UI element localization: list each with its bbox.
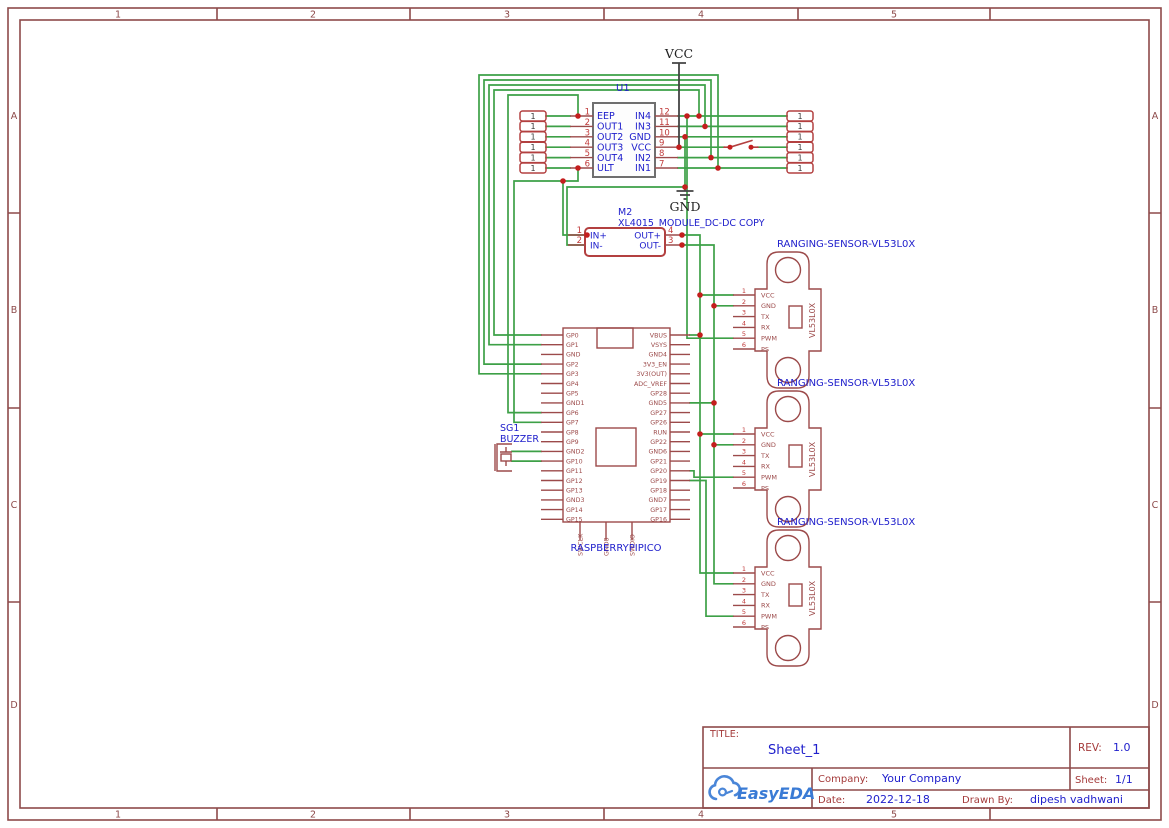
- frame-ticks-bottom: [217, 808, 990, 820]
- header-pin-number: 1: [797, 122, 802, 131]
- sensor-pin-number: 3: [742, 309, 746, 317]
- pico-pin-name: GP7: [566, 420, 579, 427]
- sensor-pin-name: RX: [761, 324, 771, 332]
- component-buzzer[interactable]: SG1 BUZZER: [495, 423, 539, 471]
- pico-left-pins[interactable]: [541, 335, 563, 519]
- title-label: TITLE:: [709, 729, 739, 740]
- header-pin-number: 1: [530, 153, 535, 162]
- gnd-net-flag[interactable]: GND: [670, 187, 701, 214]
- frame-row-label: C: [1152, 500, 1159, 511]
- pico-pin-name: GND: [566, 352, 581, 359]
- buzzer-crystal[interactable]: [501, 454, 511, 461]
- header-pin-number: 1: [530, 133, 535, 142]
- u1-designator[interactable]: U1: [616, 83, 630, 94]
- sensor-mount-hole: [776, 636, 801, 661]
- m2-pin-number: 2: [577, 236, 582, 246]
- pico-pin-name: GP1: [566, 342, 579, 349]
- wire[interactable]: [514, 181, 563, 422]
- u1-pin-number: 12: [659, 108, 670, 118]
- pico-pin-name: GP13: [566, 488, 583, 495]
- header-pin-number: 1: [797, 112, 802, 121]
- sensor-pin-number: 4: [742, 458, 746, 466]
- sensor-chip-label: VL53L0X: [808, 302, 817, 338]
- pico-pin-name: GND2: [566, 449, 584, 456]
- headers-left[interactable]: 1 1 1 1 1 1: [520, 111, 546, 173]
- pico-pin-name: GP14: [566, 507, 583, 514]
- u1-pin-name: EEP: [597, 111, 615, 122]
- easyeda-logo-text: EasyEDA: [737, 784, 815, 803]
- frame-row-label: A: [11, 111, 18, 122]
- buzzer-body[interactable]: [495, 444, 512, 471]
- sensor-pin-name: PS: [761, 345, 769, 353]
- vcc-net-label[interactable]: VCC: [664, 46, 693, 61]
- m2-pin-number: 3: [668, 236, 673, 246]
- sensor-pin-name: PWM: [761, 474, 777, 482]
- sensor-pin-name: VCC: [761, 291, 775, 299]
- sensor-pin-name: PS: [761, 484, 769, 492]
- pico-pin-name: GP9: [566, 439, 579, 446]
- sensor-pin-name: TX: [760, 452, 770, 460]
- title-block[interactable]: TITLE: Sheet_1 REV: 1.0 EasyEDA Company:…: [703, 727, 1149, 808]
- sensor-pin-name: RX: [761, 463, 771, 471]
- header-pin-number: 1: [797, 153, 802, 162]
- sensor-chip-label: VL53L0X: [808, 580, 817, 616]
- pico-bottom-pins[interactable]: [580, 522, 632, 540]
- sensor-mount-hole: [776, 397, 801, 422]
- sensor-pin-number: 3: [742, 448, 746, 456]
- pico-pin-name: ADC_VREF: [634, 381, 667, 388]
- wire[interactable]: [512, 451, 541, 461]
- buzzer-designator[interactable]: SG1: [500, 423, 519, 434]
- sensor-pin-number: 2: [742, 298, 746, 306]
- frame-ticks-top: [217, 8, 990, 20]
- wire[interactable]: [690, 471, 733, 477]
- sensor-pin-number: 6: [742, 341, 746, 349]
- frame-row-label: D: [10, 700, 17, 711]
- u1-pin-name: OUT2: [597, 132, 623, 143]
- schematic-editor-canvas[interactable]: 1 2 3 4 5 1 2 3 4 5 A B C D A B C D: [0, 0, 1169, 828]
- pico-pin-name: GP28: [650, 391, 667, 398]
- frame-col-label: 3: [504, 10, 510, 21]
- sensor-mount-hole: [776, 258, 801, 283]
- frame-col-label: 2: [310, 810, 316, 821]
- sensor-pin-name: PWM: [761, 613, 777, 621]
- u1-pin-number: 11: [659, 118, 670, 128]
- pico-pin-name: GP16: [650, 517, 667, 524]
- u1-pin-name: OUT3: [597, 142, 623, 153]
- pico-pin-name: GP8: [566, 429, 579, 436]
- company-value[interactable]: Your Company: [881, 772, 962, 785]
- sensor-chip-window: [789, 584, 802, 606]
- frame-col-label: 5: [891, 10, 897, 21]
- sensor-pin-name: VCC: [761, 430, 775, 438]
- pico-pin-name: GP26: [650, 420, 667, 427]
- sensor-pin-name: GND: [761, 441, 776, 449]
- m2-pin-number: 1: [577, 226, 582, 236]
- pico-label[interactable]: RASPBERRYPIPICO: [570, 543, 661, 554]
- sensor-pin-number: 2: [742, 437, 746, 445]
- u1-pin-number: 8: [659, 149, 664, 159]
- pico-pin-name: GND7: [649, 497, 667, 504]
- u1-pin-name: OUT4: [597, 153, 623, 164]
- component-pico[interactable]: GP0 GP1 GND GP2 GP3 GP4 GP5 GND1 GP6 GP7…: [541, 328, 690, 556]
- sensor-pin-name: VCC: [761, 569, 775, 577]
- frame-ticks-right: [1149, 213, 1161, 602]
- u1-pin-name: VCC: [631, 142, 651, 153]
- wire[interactable]: [678, 116, 787, 168]
- rev-label: REV:: [1078, 742, 1102, 754]
- sensor-pin-number: 5: [742, 330, 746, 338]
- sensor-label[interactable]: RANGING-SENSOR-VL53L0X: [777, 378, 915, 389]
- pico-pin-name: GP12: [566, 478, 583, 485]
- pico-pin-name: GP5: [566, 391, 579, 398]
- frame-col-label: 1: [115, 10, 121, 21]
- header-pin-number: 1: [530, 112, 535, 121]
- drawn-by-value[interactable]: dipesh vadhwani: [1030, 793, 1123, 806]
- pico-pin-name: GP15: [566, 517, 583, 524]
- frame-row-label: C: [11, 500, 18, 511]
- sensor-pin-name: PWM: [761, 335, 777, 343]
- pico-pin-name: GP27: [650, 410, 667, 417]
- sensor-pin-number: 2: [742, 576, 746, 584]
- component-u1[interactable]: U1 1 2 3 4 5 6 EEP OUT1 OUT2 OUT3 OUT4 U…: [570, 83, 678, 177]
- u1-pin-number: 7: [659, 160, 664, 170]
- pico-pin-name: GP17: [650, 507, 667, 514]
- header-pin-number: 1: [530, 143, 535, 152]
- frame-col-label: 4: [698, 10, 704, 21]
- pico-pin-name: VSYS: [651, 342, 667, 349]
- pico-pin-name: GP20: [650, 468, 667, 475]
- sensor-chip-window: [789, 445, 802, 467]
- pico-pin-name: GP21: [650, 458, 667, 465]
- m2-pin-name: OUT-: [639, 242, 661, 252]
- pico-pin-name: 3V3(OUT): [636, 371, 667, 378]
- component-sensor-2[interactable]: RANGING-SENSOR-VL53L0X VL53L0X 1 2 3 4 5…: [733, 378, 915, 527]
- sensor-pin-number: 5: [742, 469, 746, 477]
- u1-pin-name: IN2: [635, 153, 651, 164]
- m2-pin-name: OUT+: [634, 232, 661, 242]
- date-label: Date:: [818, 795, 845, 806]
- u1-pin-name: ULT: [597, 163, 614, 174]
- sensor-pin-number: 4: [742, 319, 746, 327]
- pico-pin-name: GP3: [566, 371, 579, 378]
- frame-col-label: 2: [310, 10, 316, 21]
- sensor-pin-number: 1: [742, 426, 746, 434]
- sensor-pin-name: RX: [761, 602, 771, 610]
- sheet-title[interactable]: Sheet_1: [768, 743, 820, 758]
- header-pin-number: 1: [797, 164, 802, 173]
- sensor-pin-number: 4: [742, 597, 746, 605]
- sensor-pin-name: TX: [760, 313, 770, 321]
- component-sensor-3[interactable]: RANGING-SENSOR-VL53L0X VL53L0X 1 2 3 4 5…: [733, 517, 915, 666]
- frame-row-label: B: [1152, 305, 1159, 316]
- frame-row-label: B: [11, 305, 18, 316]
- m2-pin-name: IN+: [590, 232, 607, 242]
- sheet-value[interactable]: 1/1: [1115, 773, 1133, 786]
- sensor-pin-number: 5: [742, 608, 746, 616]
- m2-pin-number: 4: [668, 226, 673, 236]
- sensor-pin-name: PS: [761, 623, 769, 631]
- u1-pin-number: 3: [585, 128, 590, 138]
- pico-right-pins[interactable]: [670, 335, 690, 519]
- pico-pin-name: GP19: [650, 478, 667, 485]
- date-value[interactable]: 2022-12-18: [866, 793, 930, 806]
- sensor-pin-name: GND: [761, 580, 776, 588]
- sensor-pin-number: 3: [742, 587, 746, 595]
- pico-pin-name: VBUS: [650, 332, 667, 339]
- frame-col-label: 1: [115, 810, 121, 821]
- pico-pin-name: GND6: [649, 449, 667, 456]
- u1-pin-name: GND: [629, 132, 651, 143]
- frame-col-label: 4: [698, 810, 704, 821]
- m2-designator[interactable]: M2: [618, 207, 632, 218]
- pico-pin-name: GP22: [650, 439, 667, 446]
- frame-row-label: A: [1152, 111, 1159, 122]
- pico-pin-name: GND1: [566, 400, 584, 407]
- header-pin-number: 1: [530, 122, 535, 131]
- sensor-pin-number: 1: [742, 287, 746, 295]
- pico-pin-name: GP0: [566, 332, 579, 339]
- pico-pin-name: GP11: [566, 468, 583, 475]
- frame-row-label: D: [1151, 700, 1158, 711]
- rev-value[interactable]: 1.0: [1113, 741, 1131, 754]
- u1-pin-name: IN3: [635, 122, 651, 133]
- pico-pin-name: GND4: [649, 352, 667, 359]
- sensor-pin-number: 6: [742, 480, 746, 488]
- header-pin-number: 1: [797, 133, 802, 142]
- component-sensor-1[interactable]: RANGING-SENSOR-VL53L0X VL53L0X 1 2 3 4 5…: [733, 239, 915, 388]
- headers-right[interactable]: 1 1 1 1 1 1: [787, 111, 813, 173]
- sensor-pin-number: 1: [742, 565, 746, 573]
- frame-col-label: 5: [891, 810, 897, 821]
- sensor-chip-label: VL53L0X: [808, 441, 817, 477]
- sensor-pin-name: TX: [760, 591, 770, 599]
- pico-pin-name: RUN: [653, 429, 667, 436]
- pico-pin-name: GND3: [566, 497, 584, 504]
- u1-pin-number: 2: [585, 118, 590, 128]
- sensor-pin-number: 6: [742, 619, 746, 627]
- frame-ticks-left: [8, 213, 20, 602]
- pico-pin-name: GP2: [566, 361, 579, 368]
- pico-pin-name: GP4: [566, 381, 579, 388]
- drawn-by-label: Drawn By:: [962, 795, 1013, 806]
- gnd-net-label[interactable]: GND: [670, 199, 701, 214]
- u1-pin-number: 10: [659, 128, 670, 138]
- frame-col-label: 3: [504, 810, 510, 821]
- schematic-sheet[interactable]: 1 2 3 4 5 1 2 3 4 5 A B C D A B C D: [0, 0, 1169, 828]
- wire[interactable]: [690, 481, 733, 617]
- sensor-chip-window: [789, 306, 802, 328]
- component-m2[interactable]: M2 XL4015_MODULE_DC-DC COPY 1 2 IN+ IN- …: [568, 207, 765, 256]
- sheet-label: Sheet:: [1075, 775, 1107, 786]
- pico-pin-name: GP6: [566, 410, 579, 417]
- u1-pin-number: 1: [585, 108, 590, 118]
- u1-pin-name: OUT1: [597, 122, 623, 133]
- company-label: Company:: [818, 774, 868, 785]
- header-pin-number: 1: [530, 164, 535, 173]
- u1-pin-number: 6: [585, 160, 590, 170]
- m2-pin-name: IN-: [590, 242, 603, 252]
- pico-pin-name: 3V3_EN: [643, 361, 667, 368]
- pico-pin-name: GND5: [649, 400, 667, 407]
- u1-pin-number: 5: [585, 149, 590, 159]
- pico-pin-name: GP18: [650, 488, 667, 495]
- u1-pin-name: IN4: [635, 111, 651, 122]
- wire[interactable]: [546, 116, 570, 168]
- u1-pin-number: 4: [585, 139, 590, 149]
- wire[interactable]: [682, 235, 733, 573]
- pico-pin-name: GP10: [566, 458, 583, 465]
- u1-pin-name: IN1: [635, 163, 651, 174]
- sensor-pin-name: GND: [761, 302, 776, 310]
- header-pin-number: 1: [797, 143, 802, 152]
- u1-pin-number: 9: [659, 139, 664, 149]
- buzzer-element[interactable]: [500, 447, 512, 466]
- sensor-label[interactable]: RANGING-SENSOR-VL53L0X: [777, 517, 915, 528]
- sensor-label[interactable]: RANGING-SENSOR-VL53L0X: [777, 239, 915, 250]
- sensor-mount-hole: [776, 536, 801, 561]
- easyeda-logo: EasyEDA: [710, 776, 816, 803]
